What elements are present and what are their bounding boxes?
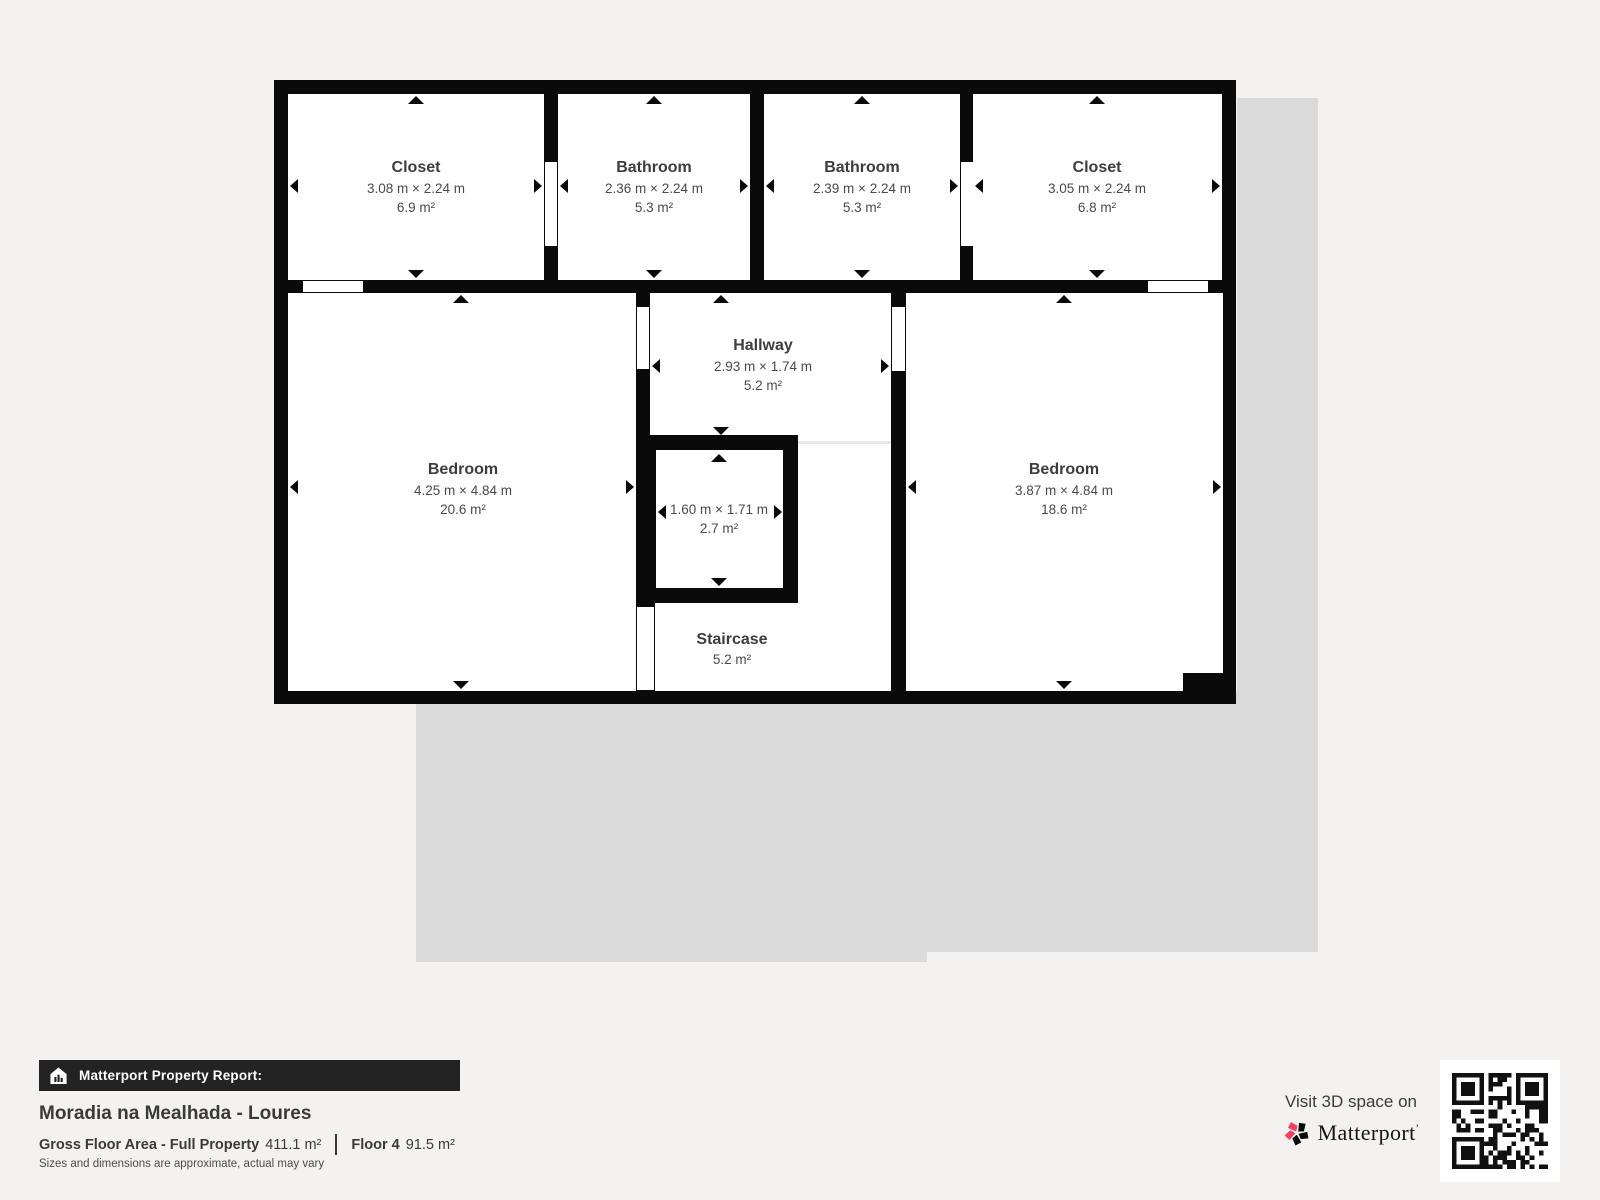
room-dimensions: 2.39 m × 2.24 m [813, 181, 911, 196]
property-report-page: Closet 3.08 m × 2.24 m 6.9 m² Bathroom 2… [0, 0, 1600, 1200]
banner-label: Matterport Property Report: [79, 1068, 262, 1083]
room-area: 5.2 m² [713, 652, 752, 667]
open-boundary-line [798, 441, 891, 444]
matterport-report-banner: Matterport Property Report: [39, 1060, 460, 1091]
room-area: 5.2 m² [744, 378, 783, 393]
room-name: Bedroom [1029, 461, 1099, 478]
matterport-logo: Matterport’ [1251, 1119, 1451, 1147]
room-staircase-floor [655, 603, 891, 691]
room-name: Staircase [696, 631, 767, 648]
room-name: Bedroom [428, 461, 498, 478]
house-chart-icon [49, 1066, 68, 1085]
floor-plan-svg: Closet 3.08 m × 2.24 m 6.9 m² Bathroom 2… [0, 0, 1600, 1200]
property-title: Moradia na Mealhada - Loures [39, 1103, 311, 1125]
gross-area-label: Gross Floor Area - Full Property [39, 1137, 259, 1153]
room-area: 20.6 m² [440, 502, 486, 517]
room-dimensions: 2.93 m × 1.74 m [714, 359, 812, 374]
room-name: Bathroom [824, 159, 900, 176]
room-dimensions: 1.60 m × 1.71 m [670, 502, 768, 517]
floor-area-value: 91.5 m² [406, 1137, 455, 1153]
room-name: Closet [1073, 159, 1123, 176]
matterport-pinwheel-icon [1283, 1119, 1311, 1147]
room-dimensions: 3.08 m × 2.24 m [367, 181, 465, 196]
visit-3d-block: Visit 3D space on Matterport’ [1251, 1092, 1451, 1147]
visit-3d-text: Visit 3D space on [1251, 1092, 1451, 1112]
floor-label: Floor 4 [351, 1137, 399, 1153]
room-small-floor [656, 450, 783, 588]
info-divider [335, 1134, 337, 1155]
room-dimensions: 4.25 m × 4.84 m [414, 483, 512, 498]
qr-code-card [1440, 1060, 1560, 1182]
room-dimensions: 3.05 m × 2.24 m [1048, 181, 1146, 196]
disclaimer-text: Sizes and dimensions are approximate, ac… [39, 1158, 324, 1170]
gross-area-value: 411.1 m² [265, 1137, 321, 1153]
room-name: Bathroom [616, 159, 692, 176]
qr-code [1452, 1073, 1548, 1169]
room-dimensions: 2.36 m × 2.24 m [605, 181, 703, 196]
room-area: 2.7 m² [700, 521, 739, 536]
room-name: Hallway [733, 337, 793, 354]
room-name: Closet [392, 159, 442, 176]
floor-area-info: Gross Floor Area - Full Property 411.1 m… [39, 1134, 455, 1155]
room-area: 6.8 m² [1078, 200, 1117, 215]
room-area: 6.9 m² [397, 200, 436, 215]
room-area: 18.6 m² [1041, 502, 1087, 517]
matterport-wordmark: Matterport’ [1318, 1120, 1420, 1146]
trademark-mark: ’ [1416, 1124, 1420, 1135]
room-area: 5.3 m² [843, 200, 882, 215]
room-dimensions: 3.87 m × 4.84 m [1015, 483, 1113, 498]
room-area: 5.3 m² [635, 200, 674, 215]
